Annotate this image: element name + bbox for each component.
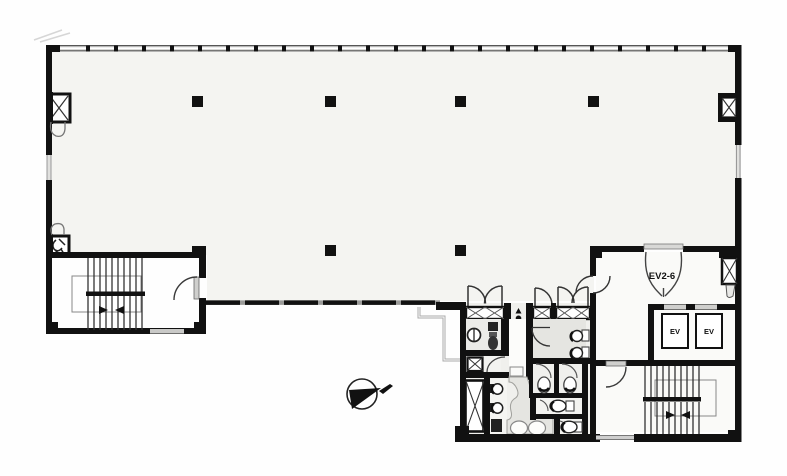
svg-text:EV2-6: EV2-6 <box>649 271 675 282</box>
svg-text:EV: EV <box>704 327 714 336</box>
svg-text:EV: EV <box>670 327 680 336</box>
